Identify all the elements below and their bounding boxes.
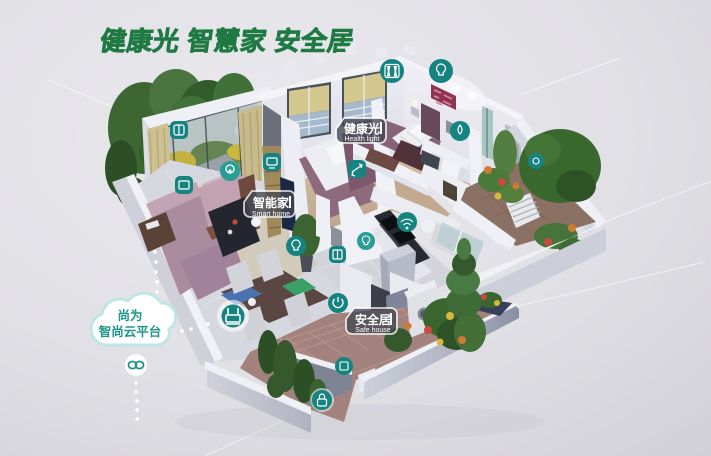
svg-text:Safe house: Safe house [355,327,391,334]
svg-text:安全居: 安全居 [355,312,391,327]
svg-text:健康光 智慧家 安全居: 健康光 智慧家 安全居 [98,26,356,56]
svg-text:健康光: 健康光 [344,121,380,136]
svg-text:Health light: Health light [344,136,379,143]
svg-text:尚为: 尚为 [117,308,142,323]
svg-text:Smart home: Smart home [252,211,290,218]
svg-text:智尚云平台: 智尚云平台 [98,324,162,339]
svg-text:智能家: 智能家 [252,195,290,210]
